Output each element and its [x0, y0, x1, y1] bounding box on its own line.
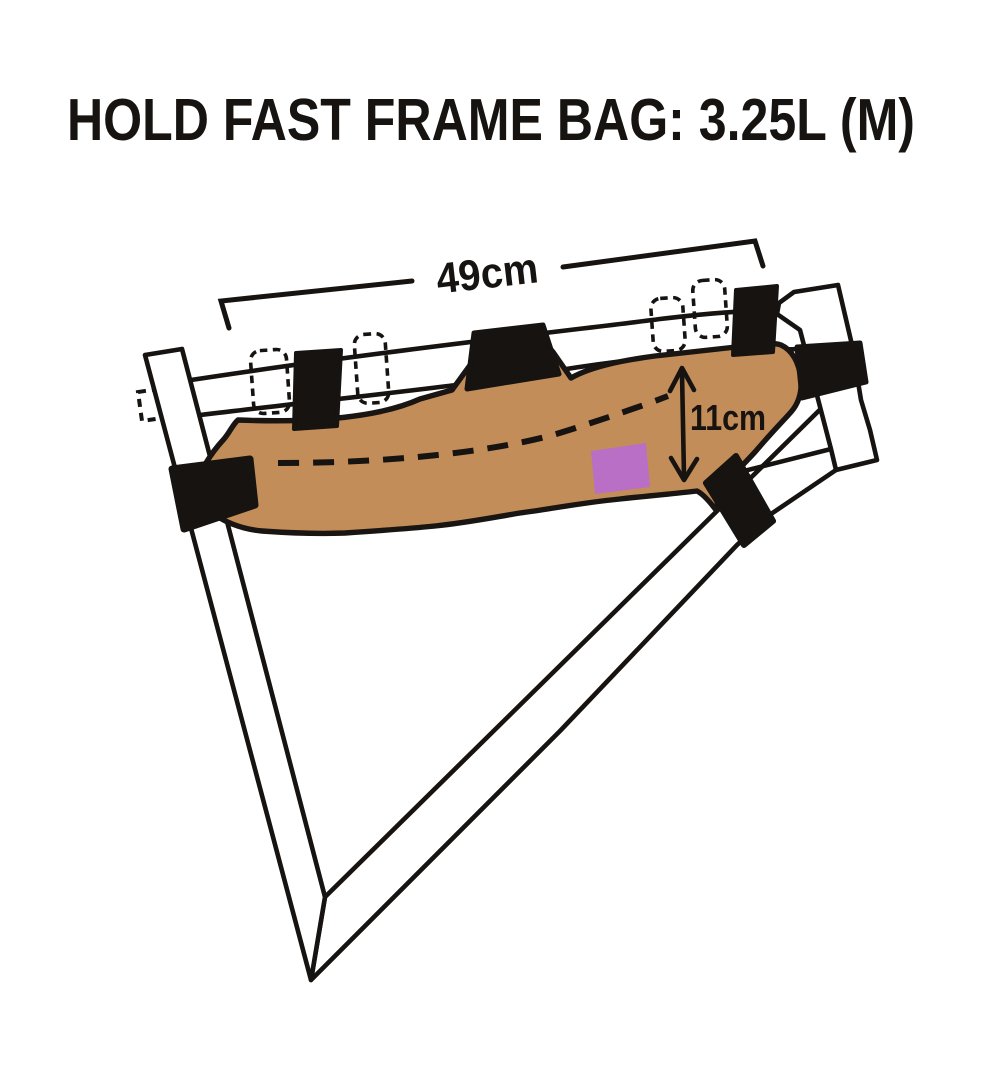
svg-text:HOLD FAST FRAME BAG: 3.25L (M): HOLD FAST FRAME BAG: 3.25L (M): [67, 87, 915, 153]
svg-text:11cm: 11cm: [690, 397, 766, 438]
